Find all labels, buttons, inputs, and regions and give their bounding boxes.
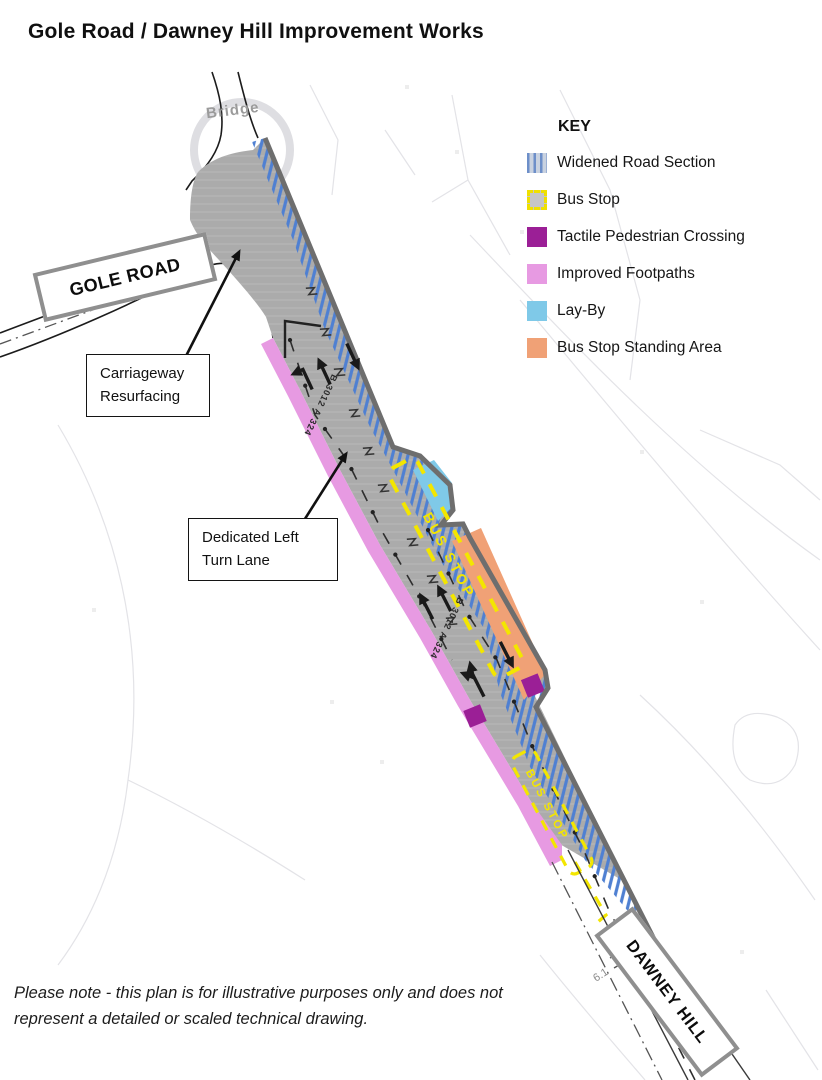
page-title: Gole Road / Dawney Hill Improvement Work…: [28, 20, 484, 44]
standing-area-swatch-icon: [527, 338, 547, 358]
key-item-tactile-crossing: Tactile Pedestrian Crossing: [527, 226, 745, 247]
key-item-label: Widened Road Section: [557, 154, 716, 172]
dedicated-left-turn-callout: Dedicated Left Turn Lane: [188, 518, 338, 581]
key-item-bus-stop: Bus Stop: [527, 189, 745, 210]
key-item-label: Bus Stop: [557, 191, 620, 209]
key-item-improved-footpaths: Improved Footpaths: [527, 263, 745, 284]
callout-line: Resurfacing: [100, 385, 196, 408]
key-item-standing-area: Bus Stop Standing Area: [527, 337, 745, 358]
distance-marker: 6.1: [591, 966, 610, 984]
callout-line: Carriageway: [100, 362, 196, 385]
improved-footpaths-swatch-icon: [527, 264, 547, 284]
key-item-lay-by: Lay-By: [527, 300, 745, 321]
improvement-works-plan: BUS STOP BUS STOP 6.1 B 3012 A 324 B 301…: [0, 0, 822, 1080]
key-item-label: Improved Footpaths: [557, 265, 695, 283]
key-item-label: Bus Stop Standing Area: [557, 339, 722, 357]
key-item-label: Tactile Pedestrian Crossing: [557, 228, 745, 246]
callout-line: Turn Lane: [202, 549, 324, 572]
bus-stop-swatch-icon: [527, 190, 547, 210]
tactile-crossing-swatch-icon: [527, 227, 547, 247]
lay-by-swatch-icon: [527, 301, 547, 321]
widened-road-swatch-icon: [527, 153, 547, 173]
key-heading: KEY: [558, 118, 745, 136]
disclaimer-note: Please note - this plan is for illustrat…: [14, 980, 534, 1033]
callout-line: Dedicated Left: [202, 526, 324, 549]
key-item-widened-road: Widened Road Section: [527, 152, 745, 173]
map-key: KEY Widened Road Section Bus Stop Tactil…: [527, 118, 745, 358]
improved-footpath: [261, 338, 562, 866]
carriageway-resurfacing-callout: Carriageway Resurfacing: [86, 354, 210, 417]
key-item-label: Lay-By: [557, 302, 605, 320]
